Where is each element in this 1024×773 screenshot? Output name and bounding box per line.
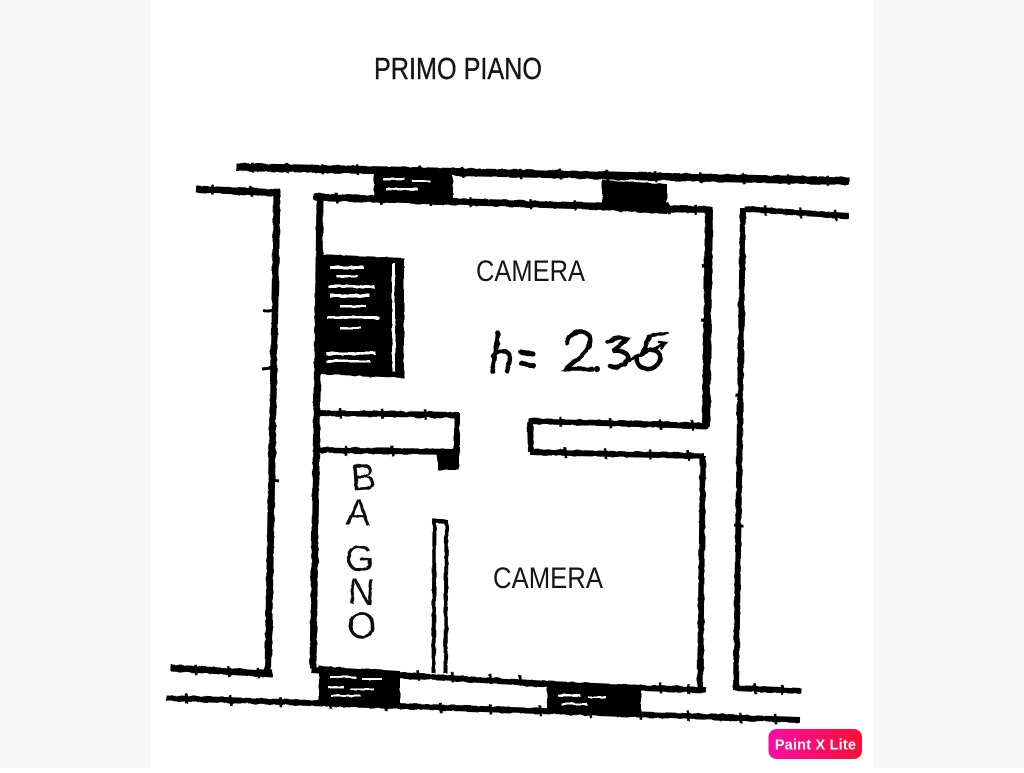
svg-text:CAMERA: CAMERA [493,562,603,595]
svg-text:A: A [345,491,372,533]
svg-text:PRIMO PIANO: PRIMO PIANO [374,51,542,86]
svg-text:CAMERA: CAMERA [476,255,585,288]
svg-text:O: O [345,604,377,647]
svg-text:Paint X Lite: Paint X Lite [775,738,856,754]
